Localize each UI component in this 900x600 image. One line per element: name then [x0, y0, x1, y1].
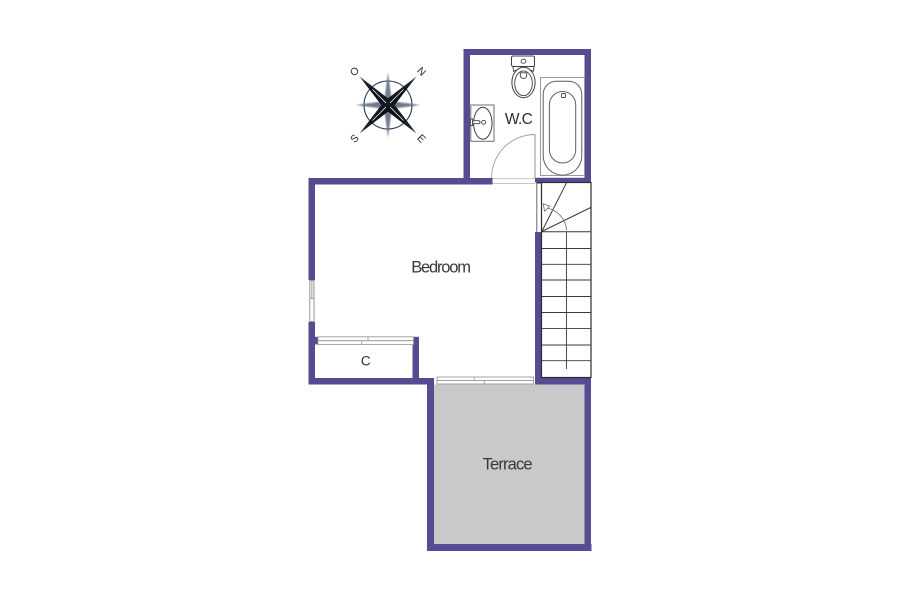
svg-text:C: C [361, 353, 371, 368]
svg-text:Bedroom: Bedroom [411, 259, 470, 277]
svg-text:S: S [348, 132, 361, 145]
svg-text:E: E [414, 132, 427, 145]
svg-text:W.C: W.C [505, 111, 533, 128]
svg-text:Terrace: Terrace [483, 455, 533, 473]
